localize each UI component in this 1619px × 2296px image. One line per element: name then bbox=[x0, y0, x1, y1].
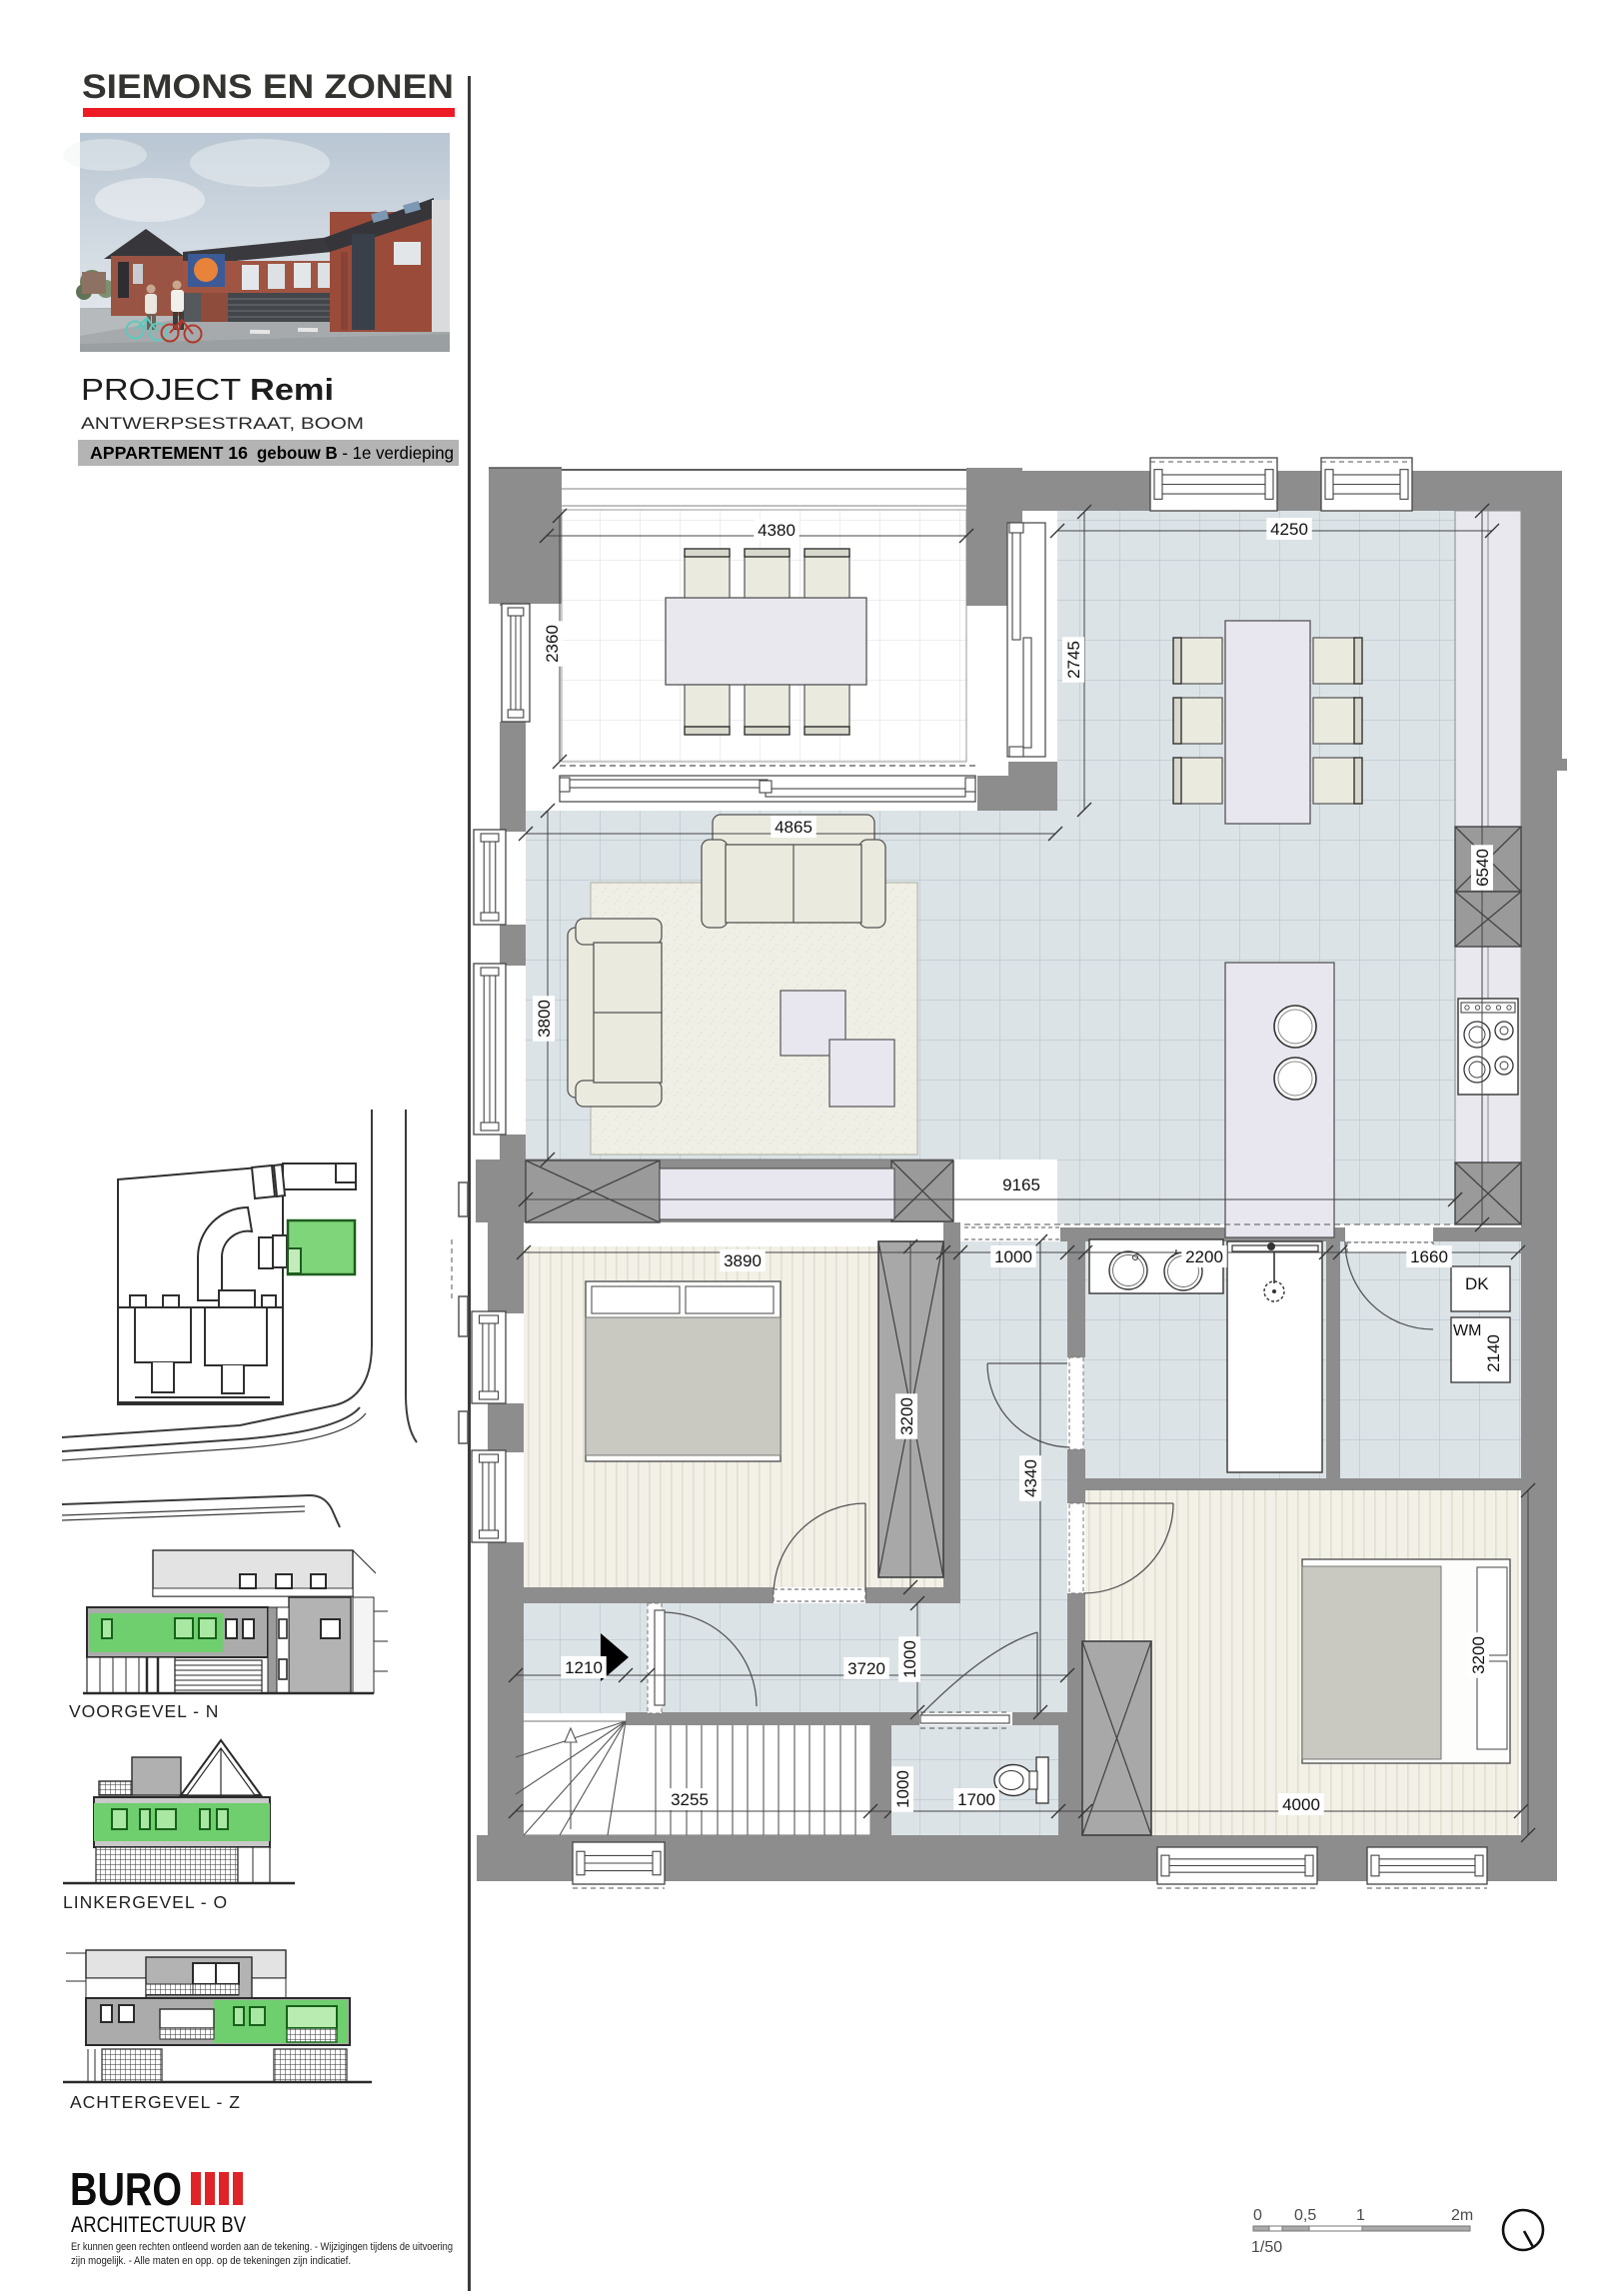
svg-text:4380: 4380 bbox=[758, 521, 796, 540]
svg-text:Er kunnen geen rechten ontleen: Er kunnen geen rechten ontleend worden a… bbox=[71, 2241, 453, 2253]
svg-text:PROJECT Remi: PROJECT Remi bbox=[81, 372, 334, 407]
svg-text:3200: 3200 bbox=[897, 1397, 916, 1435]
svg-text:1000: 1000 bbox=[994, 1247, 1032, 1266]
svg-text:0: 0 bbox=[1253, 2207, 1262, 2224]
svg-text:2360: 2360 bbox=[543, 625, 562, 663]
svg-text:BURO: BURO bbox=[70, 2163, 182, 2215]
svg-text:1660: 1660 bbox=[1410, 1247, 1448, 1266]
svg-text:2200: 2200 bbox=[1185, 1247, 1223, 1266]
svg-text:4000: 4000 bbox=[1282, 1795, 1320, 1814]
svg-text:2140: 2140 bbox=[1484, 1334, 1503, 1372]
svg-text:LINKERGEVEL - O: LINKERGEVEL - O bbox=[63, 1892, 228, 1912]
svg-text:zijn mogelijk. - Alle maten en: zijn mogelijk. - Alle maten en opp. op d… bbox=[71, 2255, 351, 2267]
svg-text:ARCHITECTUUR BV: ARCHITECTUUR BV bbox=[71, 2212, 246, 2237]
svg-text:APPARTEMENT 16: APPARTEMENT 16 bbox=[90, 443, 248, 463]
svg-text:DK: DK bbox=[1465, 1274, 1489, 1293]
svg-text:1210: 1210 bbox=[565, 1658, 603, 1677]
svg-text:4250: 4250 bbox=[1270, 520, 1308, 539]
svg-text:ANTWERPSESTRAAT, BOOM: ANTWERPSESTRAAT, BOOM bbox=[81, 414, 364, 433]
svg-text:2745: 2745 bbox=[1064, 641, 1083, 679]
svg-text:3200: 3200 bbox=[1469, 1636, 1488, 1674]
svg-text:1/50: 1/50 bbox=[1251, 2239, 1282, 2256]
svg-text:SIEMONS EN ZONEN: SIEMONS EN ZONEN bbox=[82, 68, 454, 106]
svg-text:3720: 3720 bbox=[847, 1659, 885, 1678]
svg-text:0,5: 0,5 bbox=[1294, 2207, 1316, 2224]
svg-text:9165: 9165 bbox=[1002, 1175, 1040, 1194]
svg-text:4340: 4340 bbox=[1021, 1459, 1040, 1497]
svg-text:1000: 1000 bbox=[900, 1640, 919, 1678]
svg-text:2m: 2m bbox=[1451, 2207, 1473, 2224]
svg-text:1700: 1700 bbox=[957, 1790, 995, 1809]
svg-text:VOORGEVEL - N: VOORGEVEL - N bbox=[69, 1701, 219, 1721]
svg-text:ACHTERGEVEL - Z: ACHTERGEVEL - Z bbox=[70, 2092, 241, 2112]
svg-text:3890: 3890 bbox=[724, 1251, 762, 1270]
svg-text:1000: 1000 bbox=[893, 1770, 912, 1808]
svg-text:1: 1 bbox=[1356, 2207, 1365, 2224]
svg-text:3255: 3255 bbox=[671, 1790, 709, 1809]
svg-text:3800: 3800 bbox=[535, 1000, 554, 1038]
svg-text:WM: WM bbox=[1453, 1322, 1481, 1339]
svg-text:6540: 6540 bbox=[1473, 849, 1492, 887]
svg-text:gebouw B - 1e verdieping: gebouw B - 1e verdieping bbox=[257, 443, 454, 463]
svg-text:4865: 4865 bbox=[775, 818, 812, 837]
